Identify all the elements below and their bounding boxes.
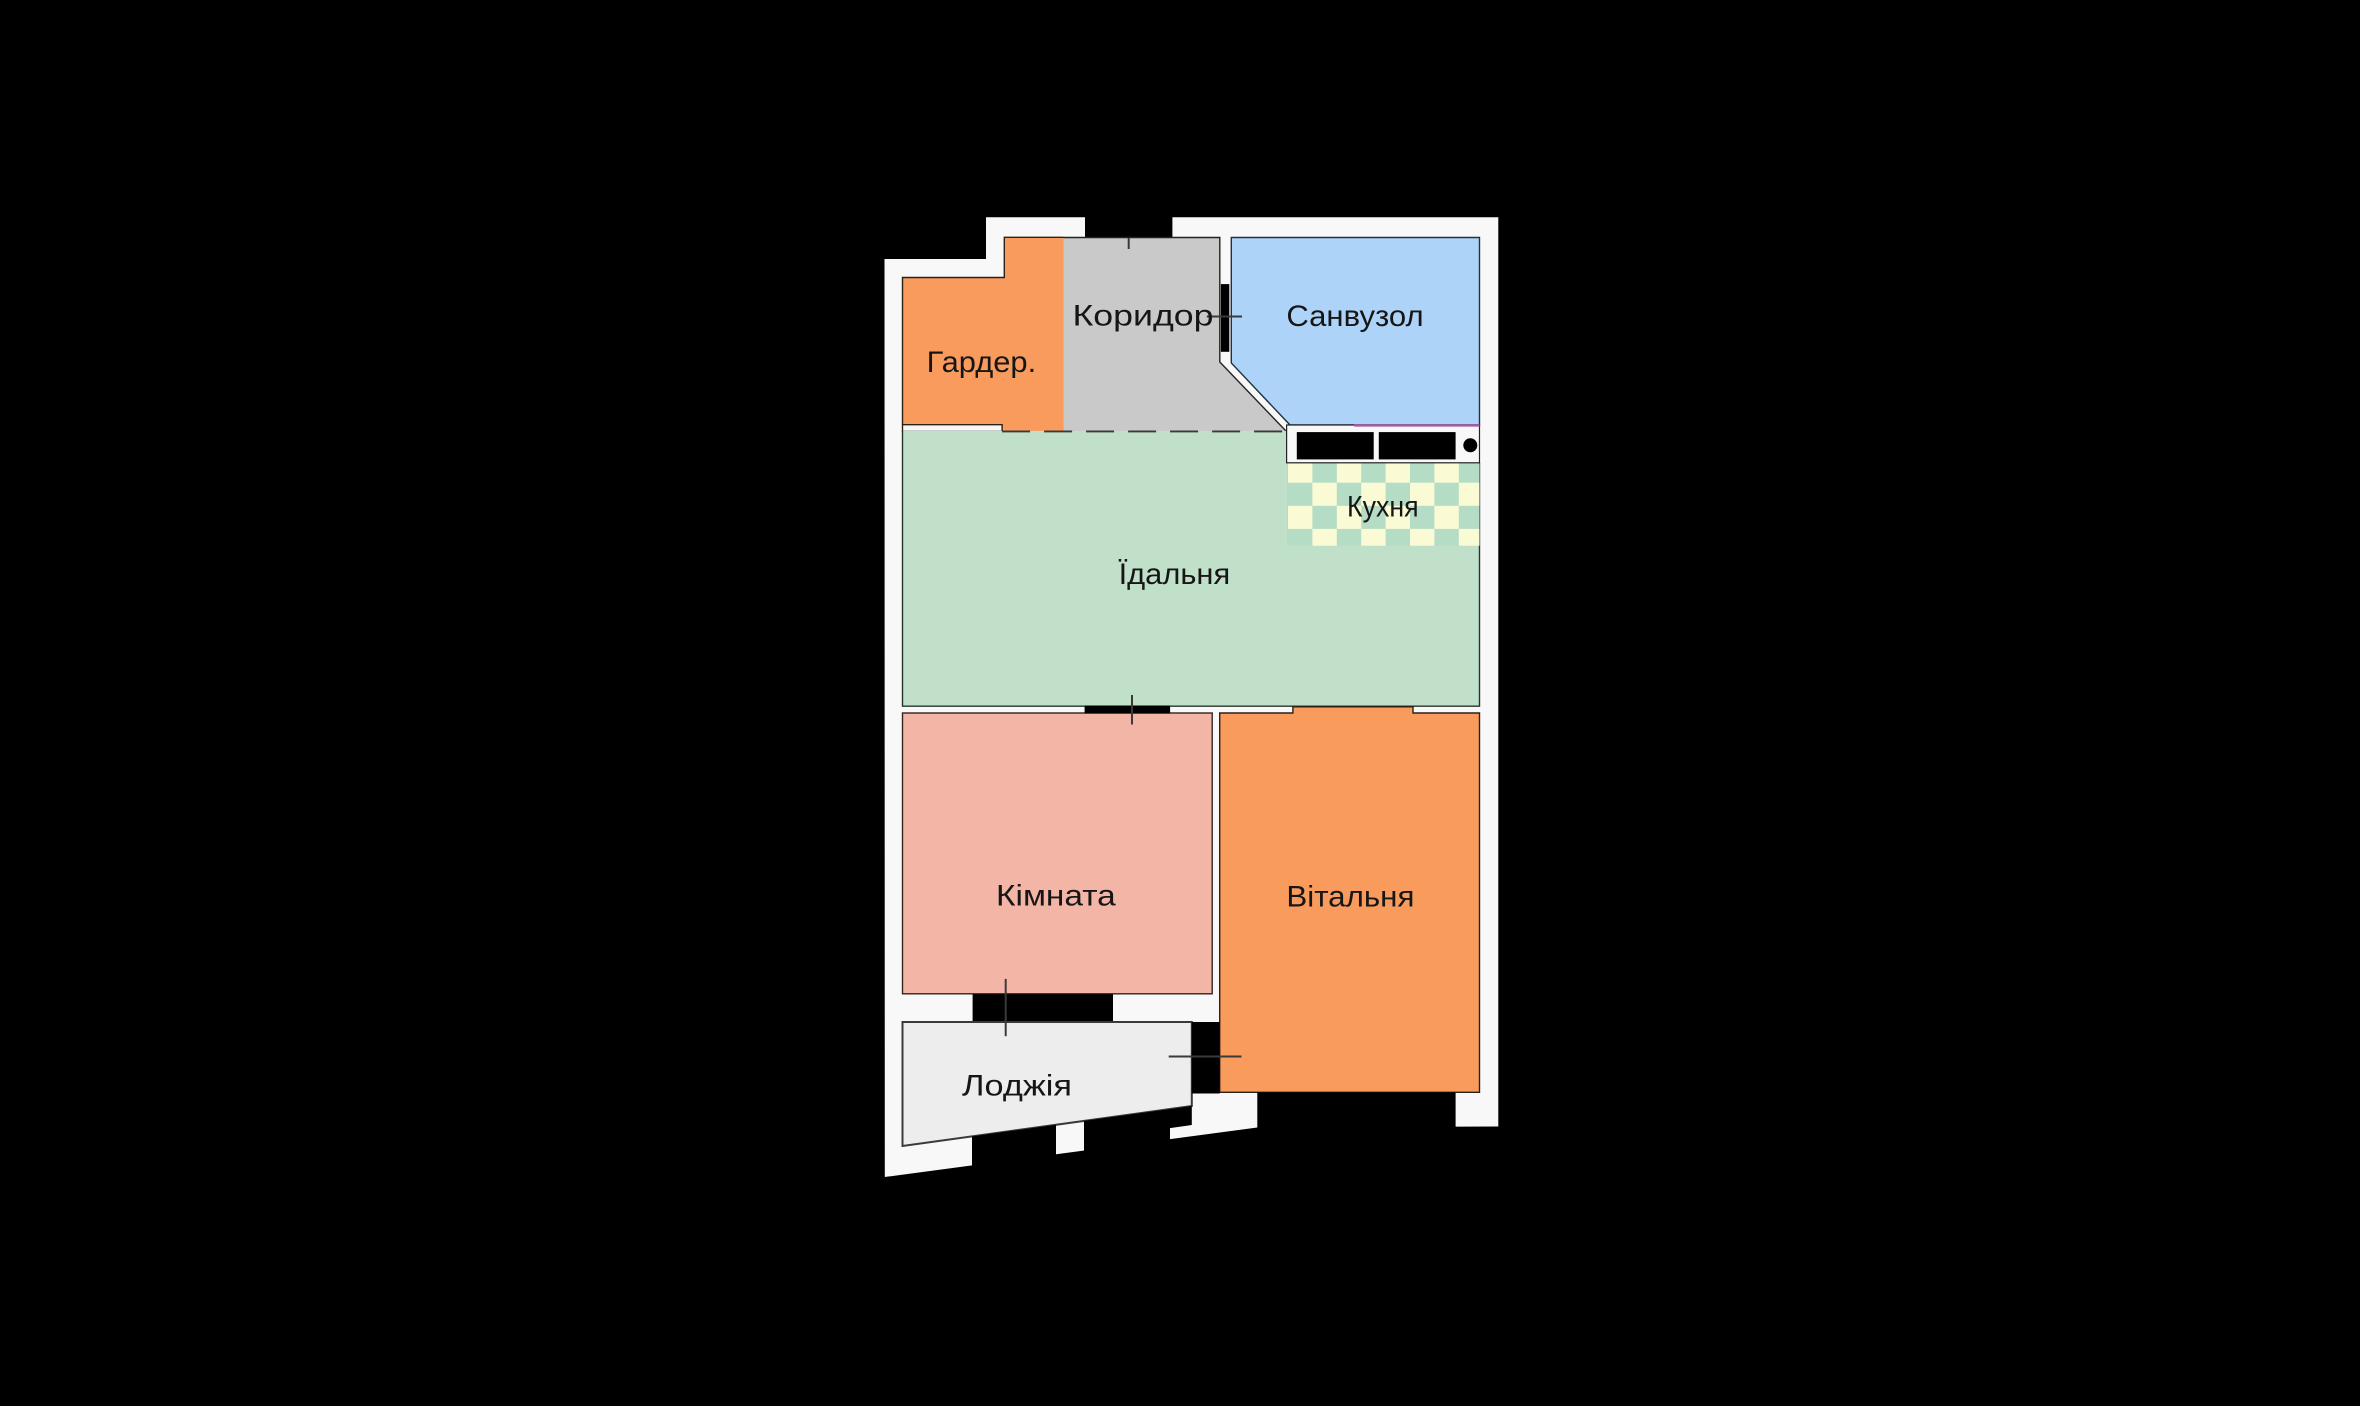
svg-text:Вітальня: Вітальня: [1286, 881, 1414, 914]
svg-text:Санвузол: Санвузол: [1286, 300, 1423, 333]
svg-text:Кімната: Кімната: [996, 880, 1116, 913]
svg-text:Гардер.: Гардер.: [927, 346, 1037, 379]
svg-text:Коридор: Коридор: [1073, 300, 1214, 333]
svg-text:Їдальня: Їдальня: [1119, 558, 1231, 591]
svg-text:Кухня: Кухня: [1347, 491, 1419, 524]
svg-text:Лоджія: Лоджія: [962, 1070, 1072, 1103]
